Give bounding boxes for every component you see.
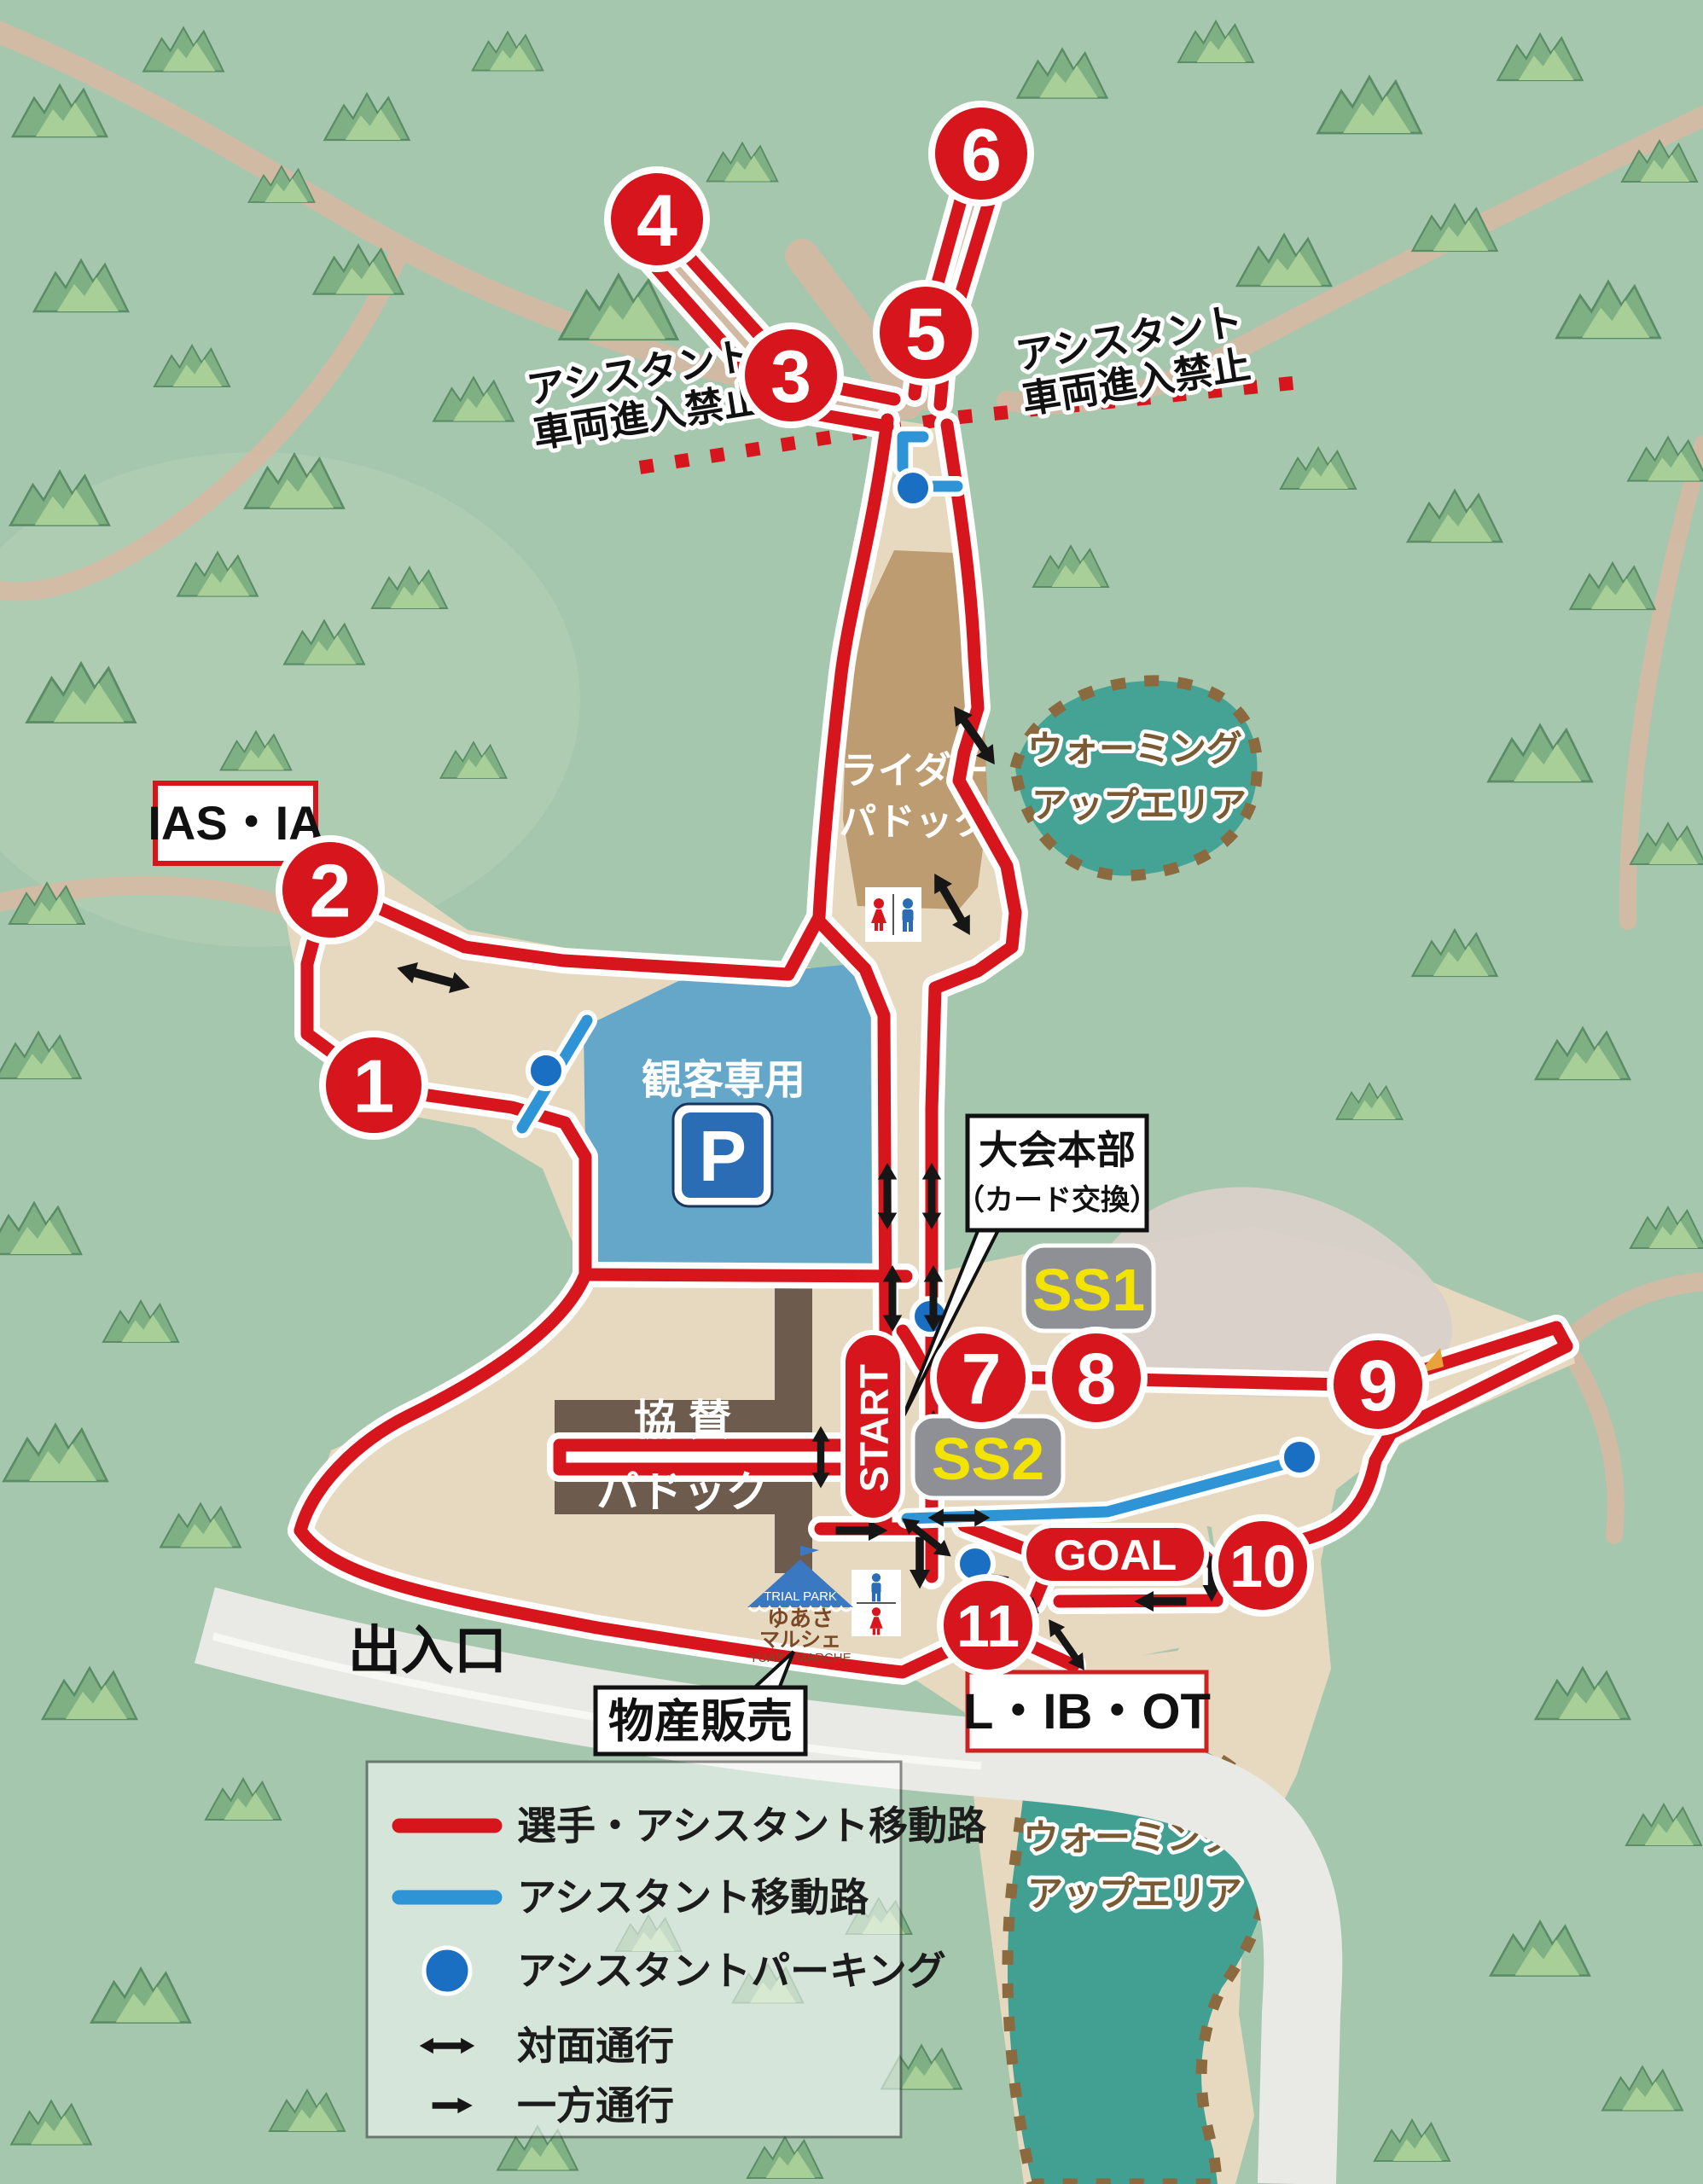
svg-text:IAS・IA: IAS・IA (148, 796, 323, 850)
legend: 選手・アシスタント移動路 アシスタント移動路 アシスタントパーキング 対面通行 … (367, 1762, 987, 2137)
goal-marker: GOAL (1024, 1525, 1206, 1583)
spectator-parking-area: 観客専用 P (584, 962, 872, 1273)
svg-text:選手・アシスタント移動路: 選手・アシスタント移動路 (517, 1804, 987, 1848)
checkpoint-4: 4 (607, 170, 706, 269)
svg-text:対面通行: 対面通行 (517, 2024, 674, 2068)
trial-park-course-map: 観客専用 P ライダー パドック ウォーミング アップエリア ウォーミング アッ… (0, 0, 1703, 2184)
checkpoint-1: 1 (323, 1034, 425, 1136)
svg-text:7: 7 (962, 1339, 1002, 1419)
svg-text:11: 11 (956, 1593, 1020, 1659)
svg-text:一方通行: 一方通行 (517, 2083, 674, 2128)
checkpoint-7: 7 (933, 1330, 1029, 1426)
svg-text:アシスタントパーキング: アシスタントパーキング (517, 1949, 946, 1993)
sponsor-paddock-label-1: 協 賛 (634, 1397, 731, 1444)
svg-text:4: 4 (636, 180, 677, 262)
hq-subtitle: （カード交換） (956, 1183, 1159, 1217)
hq-box: 大会本部 （カード交換） (956, 1116, 1159, 1230)
entrance-label: 出入口 (348, 1622, 507, 1681)
checkpoint-10: 10 (1215, 1518, 1311, 1613)
svg-text:アシスタント移動路: アシスタント移動路 (517, 1875, 869, 1920)
restroom-icon-start (851, 1570, 901, 1636)
svg-text:L・IB・OT: L・IB・OT (963, 1684, 1211, 1740)
svg-text:10: 10 (1229, 1533, 1296, 1600)
marche-jp2: マルシェ (759, 1629, 841, 1652)
checkpoint-8: 8 (1049, 1330, 1144, 1426)
svg-text:物産販売: 物産販売 (608, 1696, 793, 1747)
assistant-parking-dot (895, 470, 931, 506)
spectator-parking-label: 観客専用 (642, 1058, 805, 1103)
svg-text:SS2: SS2 (932, 1426, 1044, 1492)
start-marker: START (843, 1333, 903, 1520)
checkpoint-2: 2 (279, 839, 381, 941)
parking-sign-icon: P (673, 1104, 772, 1206)
warmup-top-label-2: アップエリア (1032, 785, 1247, 825)
checkpoint-3: 3 (741, 326, 840, 425)
warmup-bottom-label-2: アップエリア (1027, 1873, 1242, 1914)
checkpoint-9: 9 (1330, 1337, 1426, 1432)
hq-title: 大会本部 (979, 1128, 1136, 1172)
svg-text:SS1: SS1 (1032, 1257, 1145, 1323)
checkpoint-5: 5 (876, 283, 975, 382)
svg-text:2: 2 (310, 849, 352, 933)
svg-text:START: START (852, 1364, 897, 1492)
assistant-parking-dot (1282, 1439, 1317, 1475)
restroom-icon-paddock (865, 887, 921, 942)
products-box: 物産販売 (596, 1687, 805, 1754)
svg-text:GOAL: GOAL (1054, 1531, 1177, 1579)
ss1-box: SS1 (1024, 1246, 1154, 1331)
marche-jp1: ゆあさ (767, 1606, 834, 1631)
checkpoint-11: 11 (940, 1577, 1036, 1673)
marche-park-label: TRIAL PARK (764, 1589, 837, 1604)
svg-text:1: 1 (353, 1044, 395, 1129)
marche-en: YUASA MARCHE (749, 1651, 851, 1665)
svg-text:8: 8 (1077, 1339, 1117, 1419)
svg-text:5: 5 (905, 293, 946, 375)
map-canvas: 観客専用 P ライダー パドック ウォーミング アップエリア ウォーミング アッ… (0, 0, 1703, 2184)
svg-text:3: 3 (770, 336, 811, 418)
svg-text:6: 6 (961, 114, 1002, 196)
assistant-parking-dot (528, 1053, 564, 1089)
blue-dot-swatch (424, 1948, 470, 1994)
svg-text:P: P (699, 1116, 747, 1196)
sponsor-paddock-label-2: パドック (596, 1468, 769, 1516)
svg-text:9: 9 (1358, 1345, 1398, 1426)
warmup-top-label-1: ウォーミング (1027, 729, 1242, 769)
checkpoint-6: 6 (932, 104, 1031, 203)
l-ib-ot-box: L・IB・OT (963, 1672, 1211, 1751)
